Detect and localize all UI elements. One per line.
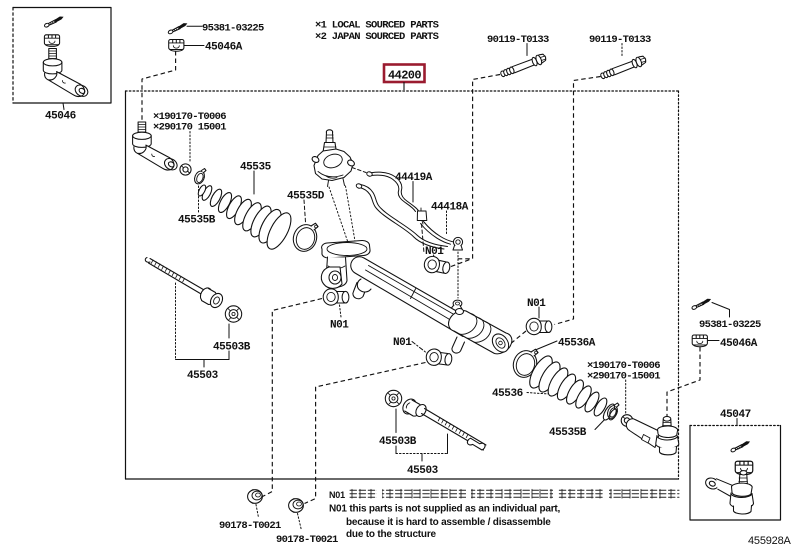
svg-text:45503: 45503 bbox=[407, 465, 439, 477]
svg-text:95381-03225: 95381-03225 bbox=[202, 23, 264, 35]
svg-text:45503B: 45503B bbox=[379, 436, 417, 448]
svg-text:45535B: 45535B bbox=[178, 215, 216, 227]
svg-text:90119-T0133: 90119-T0133 bbox=[487, 34, 549, 46]
svg-text:N01: N01 bbox=[330, 320, 349, 332]
svg-text:44418A: 44418A bbox=[431, 202, 469, 214]
svg-text:N01: N01 bbox=[527, 298, 546, 310]
svg-text:44200: 44200 bbox=[388, 69, 421, 83]
svg-text:95381-03225: 95381-03225 bbox=[699, 319, 761, 331]
svg-text:90178-T0021: 90178-T0021 bbox=[276, 534, 338, 546]
svg-text:45503: 45503 bbox=[187, 370, 219, 382]
svg-text:455928A: 455928A bbox=[748, 535, 792, 547]
svg-text:45535: 45535 bbox=[240, 162, 272, 174]
svg-text:45535D: 45535D bbox=[287, 191, 325, 203]
svg-text:45536A: 45536A bbox=[558, 338, 596, 350]
svg-text:45535B: 45535B bbox=[549, 427, 587, 439]
svg-text:due to the structure: due to the structure bbox=[346, 529, 437, 540]
svg-text:45046A: 45046A bbox=[720, 338, 758, 350]
svg-text:N01: N01 bbox=[393, 337, 412, 349]
svg-text:45536: 45536 bbox=[492, 388, 523, 400]
svg-text:90119-T0133: 90119-T0133 bbox=[589, 34, 651, 46]
svg-text:45503B: 45503B bbox=[213, 342, 251, 354]
svg-text:45046: 45046 bbox=[45, 111, 76, 123]
svg-text:×2 JAPAN SOURCED PARTS: ×2 JAPAN SOURCED PARTS bbox=[315, 31, 439, 43]
svg-text:90178-T0021: 90178-T0021 bbox=[219, 520, 281, 532]
svg-text:N01 this parts is not supplied: N01 this parts is not supplied as an ind… bbox=[329, 504, 561, 515]
svg-text:N01: N01 bbox=[329, 490, 345, 500]
svg-text:45046A: 45046A bbox=[205, 42, 243, 54]
svg-text:×1 LOCAL SOURCED PARTS: ×1 LOCAL SOURCED PARTS bbox=[315, 20, 439, 32]
svg-text:because it is hard to assemble: because it is hard to assemble / disasse… bbox=[346, 517, 551, 528]
svg-text:×290170-15001: ×290170-15001 bbox=[587, 371, 660, 383]
svg-text:45047: 45047 bbox=[720, 409, 751, 421]
